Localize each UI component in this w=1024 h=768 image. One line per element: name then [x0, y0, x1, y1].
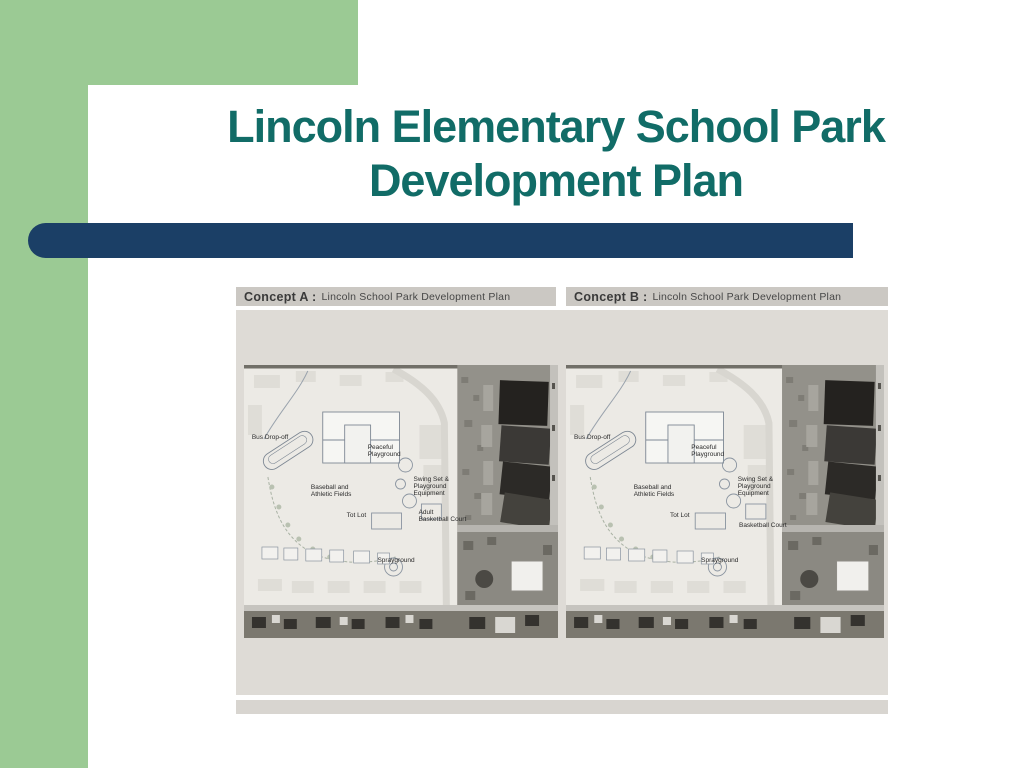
map-label-swing-set: Swing Set & Playground Equipment — [738, 476, 773, 497]
concept-a-map: Bus Drop-off Peaceful Playground Basebal… — [244, 365, 558, 638]
map-label-baseball-fields: Baseball and Athletic Fields — [311, 484, 351, 498]
map-label-basketball-court: Adult Basketball Court — [419, 509, 467, 523]
map-label-peaceful-playground: Peaceful Playground — [691, 444, 724, 458]
map-label-basketball-court: Basketball Court — [739, 522, 787, 529]
map-label-sprayground: Sprayground — [701, 557, 738, 564]
map-label-sprayground: Sprayground — [377, 557, 414, 564]
map-label-bus-dropoff: Bus Drop-off — [252, 434, 288, 441]
slide-title-line2: Development Plan — [98, 154, 1014, 208]
figure-bottom-strip — [236, 700, 888, 714]
green-top-band — [0, 0, 358, 85]
map-label-peaceful-playground: Peaceful Playground — [368, 444, 401, 458]
slide: { "slide": { "title_line1": "Lincoln Ele… — [0, 0, 1024, 768]
concept-b-label: Concept B : — [574, 290, 647, 304]
map-label-tot-lot: Tot Lot — [347, 512, 367, 519]
concept-a-aerial-plan-image — [244, 365, 558, 638]
navy-divider-bar — [28, 223, 853, 258]
map-label-tot-lot: Tot Lot — [670, 512, 690, 519]
concept-figure: Concept A : Lincoln School Park Developm… — [236, 287, 888, 714]
concept-a-header: Concept A : Lincoln School Park Developm… — [236, 287, 556, 306]
concept-b-aerial-plan-image — [566, 365, 884, 638]
map-label-baseball-fields: Baseball and Athletic Fields — [634, 484, 674, 498]
slide-title: Lincoln Elementary School Park Developme… — [98, 100, 1014, 208]
map-label-bus-dropoff: Bus Drop-off — [574, 434, 610, 441]
concept-b-header: Concept B : Lincoln School Park Developm… — [566, 287, 888, 306]
concept-a-title: Lincoln School Park Development Plan — [322, 291, 511, 303]
concept-a-label: Concept A : — [244, 290, 317, 304]
figure-panel: Bus Drop-off Peaceful Playground Basebal… — [236, 310, 888, 695]
green-sidebar — [0, 0, 88, 768]
concept-b-map: Bus Drop-off Peaceful Playground Basebal… — [566, 365, 884, 638]
concept-b-title: Lincoln School Park Development Plan — [652, 291, 841, 303]
map-label-swing-set: Swing Set & Playground Equipment — [414, 476, 449, 497]
slide-title-line1: Lincoln Elementary School Park — [98, 100, 1014, 154]
